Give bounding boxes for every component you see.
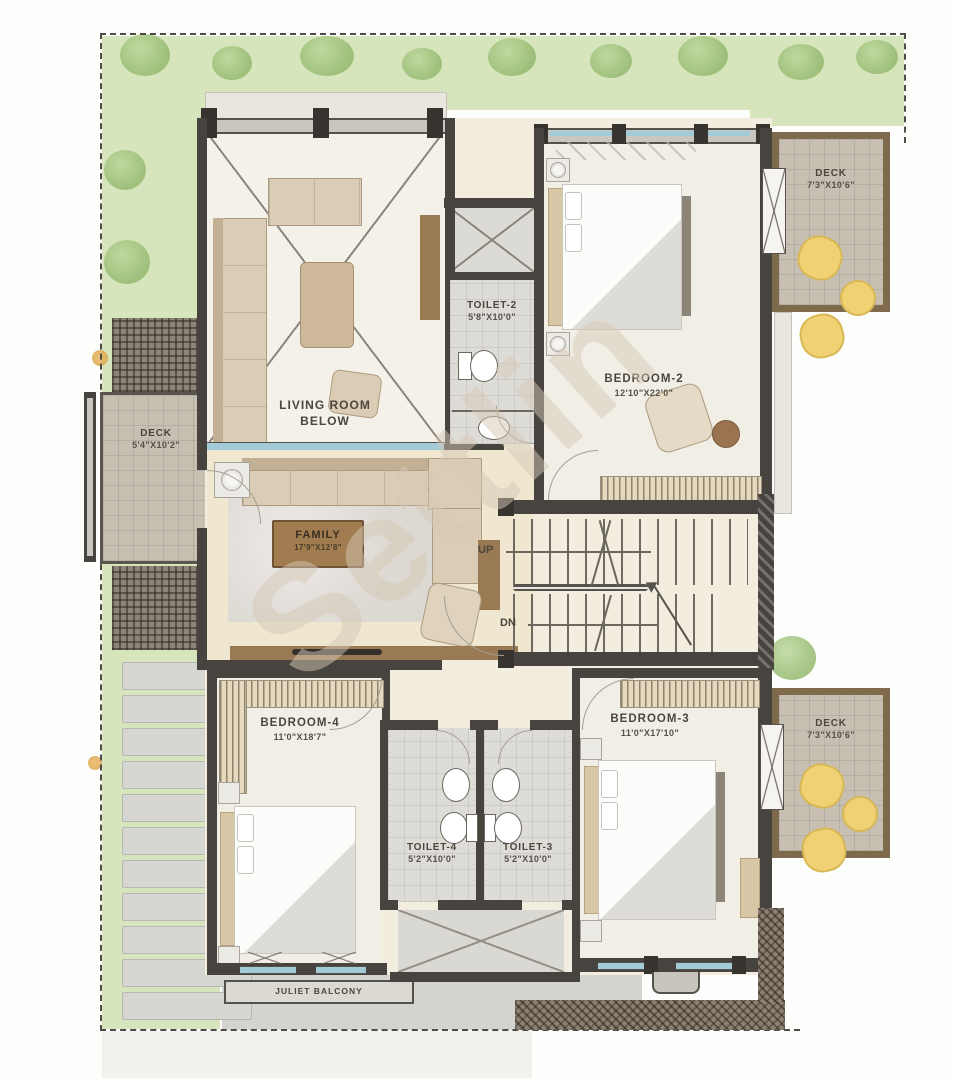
pouf (840, 280, 876, 316)
wall (470, 720, 498, 730)
wall (562, 900, 580, 910)
palm-plant (768, 636, 816, 680)
room-label: TOILET-3 (484, 842, 572, 853)
room-label: TOILET-4 (388, 842, 476, 853)
bush (104, 150, 146, 190)
deck-left-area (100, 392, 212, 564)
toilet4-label: TOILET-4 5'2"X10'0" (388, 842, 476, 864)
deck-ledge (774, 312, 792, 514)
family-sofa (242, 470, 434, 506)
bedroom4-label: BEDROOM-4 11'0"X18'7" (210, 716, 390, 742)
toilet3-label: TOILET-3 5'2"X10'0" (484, 842, 572, 864)
room-dims: 5'4"X10'2" (100, 440, 212, 450)
wardrobe (620, 680, 760, 708)
wall (380, 720, 438, 730)
wc-bowl-icon (440, 812, 468, 844)
bush (590, 44, 632, 78)
wall (438, 900, 522, 910)
ottoman (712, 420, 740, 448)
nightstand (580, 920, 602, 942)
room-label: BEDROOM-2 (544, 372, 744, 387)
family-label-plate: FAMILY 17'9"X12'8" (272, 520, 364, 568)
bedroom3-label: BEDROOM-3 11'0"X17'10" (560, 712, 740, 738)
wall (572, 668, 772, 678)
sofa-back (242, 458, 432, 470)
room-label: DECK (772, 168, 890, 179)
french-door-icon (322, 952, 356, 964)
window-glass (240, 966, 296, 974)
room-label: DECK (100, 428, 212, 439)
planter-strip (758, 908, 784, 1002)
window-glass (550, 131, 750, 136)
nightstand (580, 738, 602, 760)
corner-seat (428, 458, 482, 510)
stairs-handrail-highlight (513, 587, 648, 589)
wall (207, 668, 390, 678)
bush (856, 40, 898, 74)
chaise (432, 508, 482, 584)
column (427, 108, 443, 138)
bush (678, 36, 728, 76)
window-glass (598, 962, 644, 970)
room-dims: 5'2"X10'0" (388, 854, 476, 864)
driveway (102, 1031, 532, 1078)
deck-br-label: DECK 7'3"X10'6" (772, 718, 890, 740)
shaft (450, 208, 534, 272)
room-label: BEDROOM-3 (560, 712, 740, 727)
pillow (601, 802, 618, 830)
stair-post (498, 498, 514, 516)
floor-plan: DECK 5'4"X10'2" LIVING ROOM BELOW TOILET… (0, 0, 954, 1080)
pillow (565, 224, 582, 252)
column (694, 124, 708, 144)
pillow (237, 846, 254, 874)
bush (402, 48, 442, 80)
bush (300, 36, 354, 76)
wc-bowl-icon (494, 812, 522, 844)
wc-icon (466, 814, 478, 842)
room-label: TOILET-2 (448, 300, 536, 311)
nightstand (218, 782, 240, 804)
deck-left-label: DECK 5'4"X10'2" (100, 428, 212, 450)
room-dims: 12'10"X22'0" (544, 388, 744, 398)
wall (390, 972, 580, 982)
pouf (795, 309, 849, 363)
wall (380, 900, 398, 910)
loveseat (268, 178, 362, 226)
deck-tr-label: DECK 7'3"X10'6" (772, 168, 890, 190)
deck-tr-area (772, 132, 890, 312)
window-glass (316, 966, 366, 974)
lamp (550, 336, 566, 352)
wall (197, 118, 207, 470)
bedroom2-label: BEDROOM-2 12'10"X22'0" (544, 372, 744, 398)
wall (380, 728, 388, 910)
pouf (842, 796, 878, 832)
room-label: DECK (772, 718, 890, 729)
room-dims: 7'3"X10'6" (772, 180, 890, 190)
column (313, 108, 329, 138)
wc-bowl-icon (470, 350, 498, 382)
site-boundary-right (904, 33, 906, 143)
gate-post-inner (87, 398, 93, 556)
bush (488, 38, 536, 76)
room-dims: 17'9"X12'8" (274, 543, 362, 552)
room-dims: 5'2"X10'0" (484, 854, 572, 864)
coffee-table (300, 262, 354, 348)
bush (104, 240, 150, 284)
bed-bench (682, 196, 691, 316)
wardrobe (600, 476, 762, 502)
double-door-icon (762, 168, 786, 254)
curtain-zigzag (556, 142, 696, 160)
toilet2-label: TOILET-2 5'8"X10'0" (448, 300, 536, 322)
dn-reference-line (528, 624, 658, 626)
planter-strip (515, 1000, 785, 1030)
washbasin-icon (492, 768, 520, 802)
column (612, 124, 626, 144)
console (420, 215, 440, 320)
side-chair (740, 858, 760, 918)
wall (207, 668, 217, 975)
room-label: JULIET BALCONY (226, 982, 412, 1000)
window-glass (676, 962, 732, 970)
shaft (398, 910, 564, 972)
wall (534, 128, 544, 508)
wall (444, 198, 544, 208)
pillow (237, 814, 254, 842)
washbasin-icon (442, 768, 470, 802)
double-door-icon (760, 724, 784, 810)
site-boundary-top (100, 33, 906, 35)
wall (505, 652, 772, 666)
room-label: FAMILY (274, 528, 362, 542)
pillow (601, 770, 618, 798)
sofa-back (213, 218, 223, 453)
bush (778, 44, 824, 80)
wall (505, 500, 772, 514)
bed-bench (716, 772, 725, 902)
lamp (550, 162, 566, 178)
room-dims: 11'0"X17'10" (560, 728, 740, 738)
room-dims: 11'0"X18'7" (210, 732, 390, 742)
room-label: BEDROOM-4 (210, 716, 390, 731)
tv (292, 649, 382, 655)
living-room-label: LIVING ROOM BELOW (245, 398, 405, 429)
stairs-up-label: UP (478, 544, 493, 556)
room-dims: 5'8"X10'0" (448, 312, 536, 322)
french-door-icon (248, 952, 282, 964)
planter-box (652, 972, 700, 994)
bush (120, 34, 170, 76)
stairs-lower-flight (513, 594, 713, 652)
wall (197, 528, 207, 668)
wall (758, 494, 774, 670)
juliet-balcony-plate: JULIET BALCONY (224, 980, 414, 1004)
up-reference-line (506, 551, 651, 553)
room-dims: 7'3"X10'6" (772, 730, 890, 740)
pillow (565, 192, 582, 220)
bush (212, 46, 252, 80)
wall (450, 272, 534, 280)
column (732, 956, 746, 974)
